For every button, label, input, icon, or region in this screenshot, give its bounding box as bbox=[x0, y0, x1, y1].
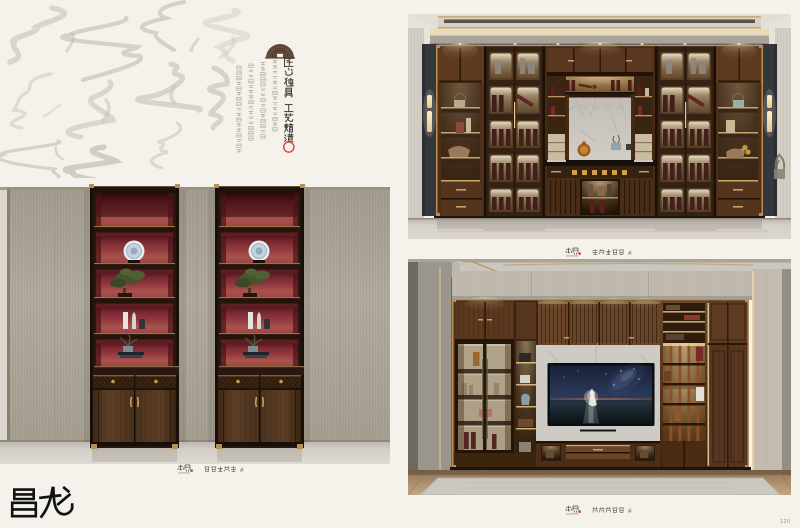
svg-text:#: # bbox=[628, 508, 632, 514]
svg-text:#: # bbox=[240, 467, 244, 473]
svg-text:#: # bbox=[628, 250, 632, 256]
